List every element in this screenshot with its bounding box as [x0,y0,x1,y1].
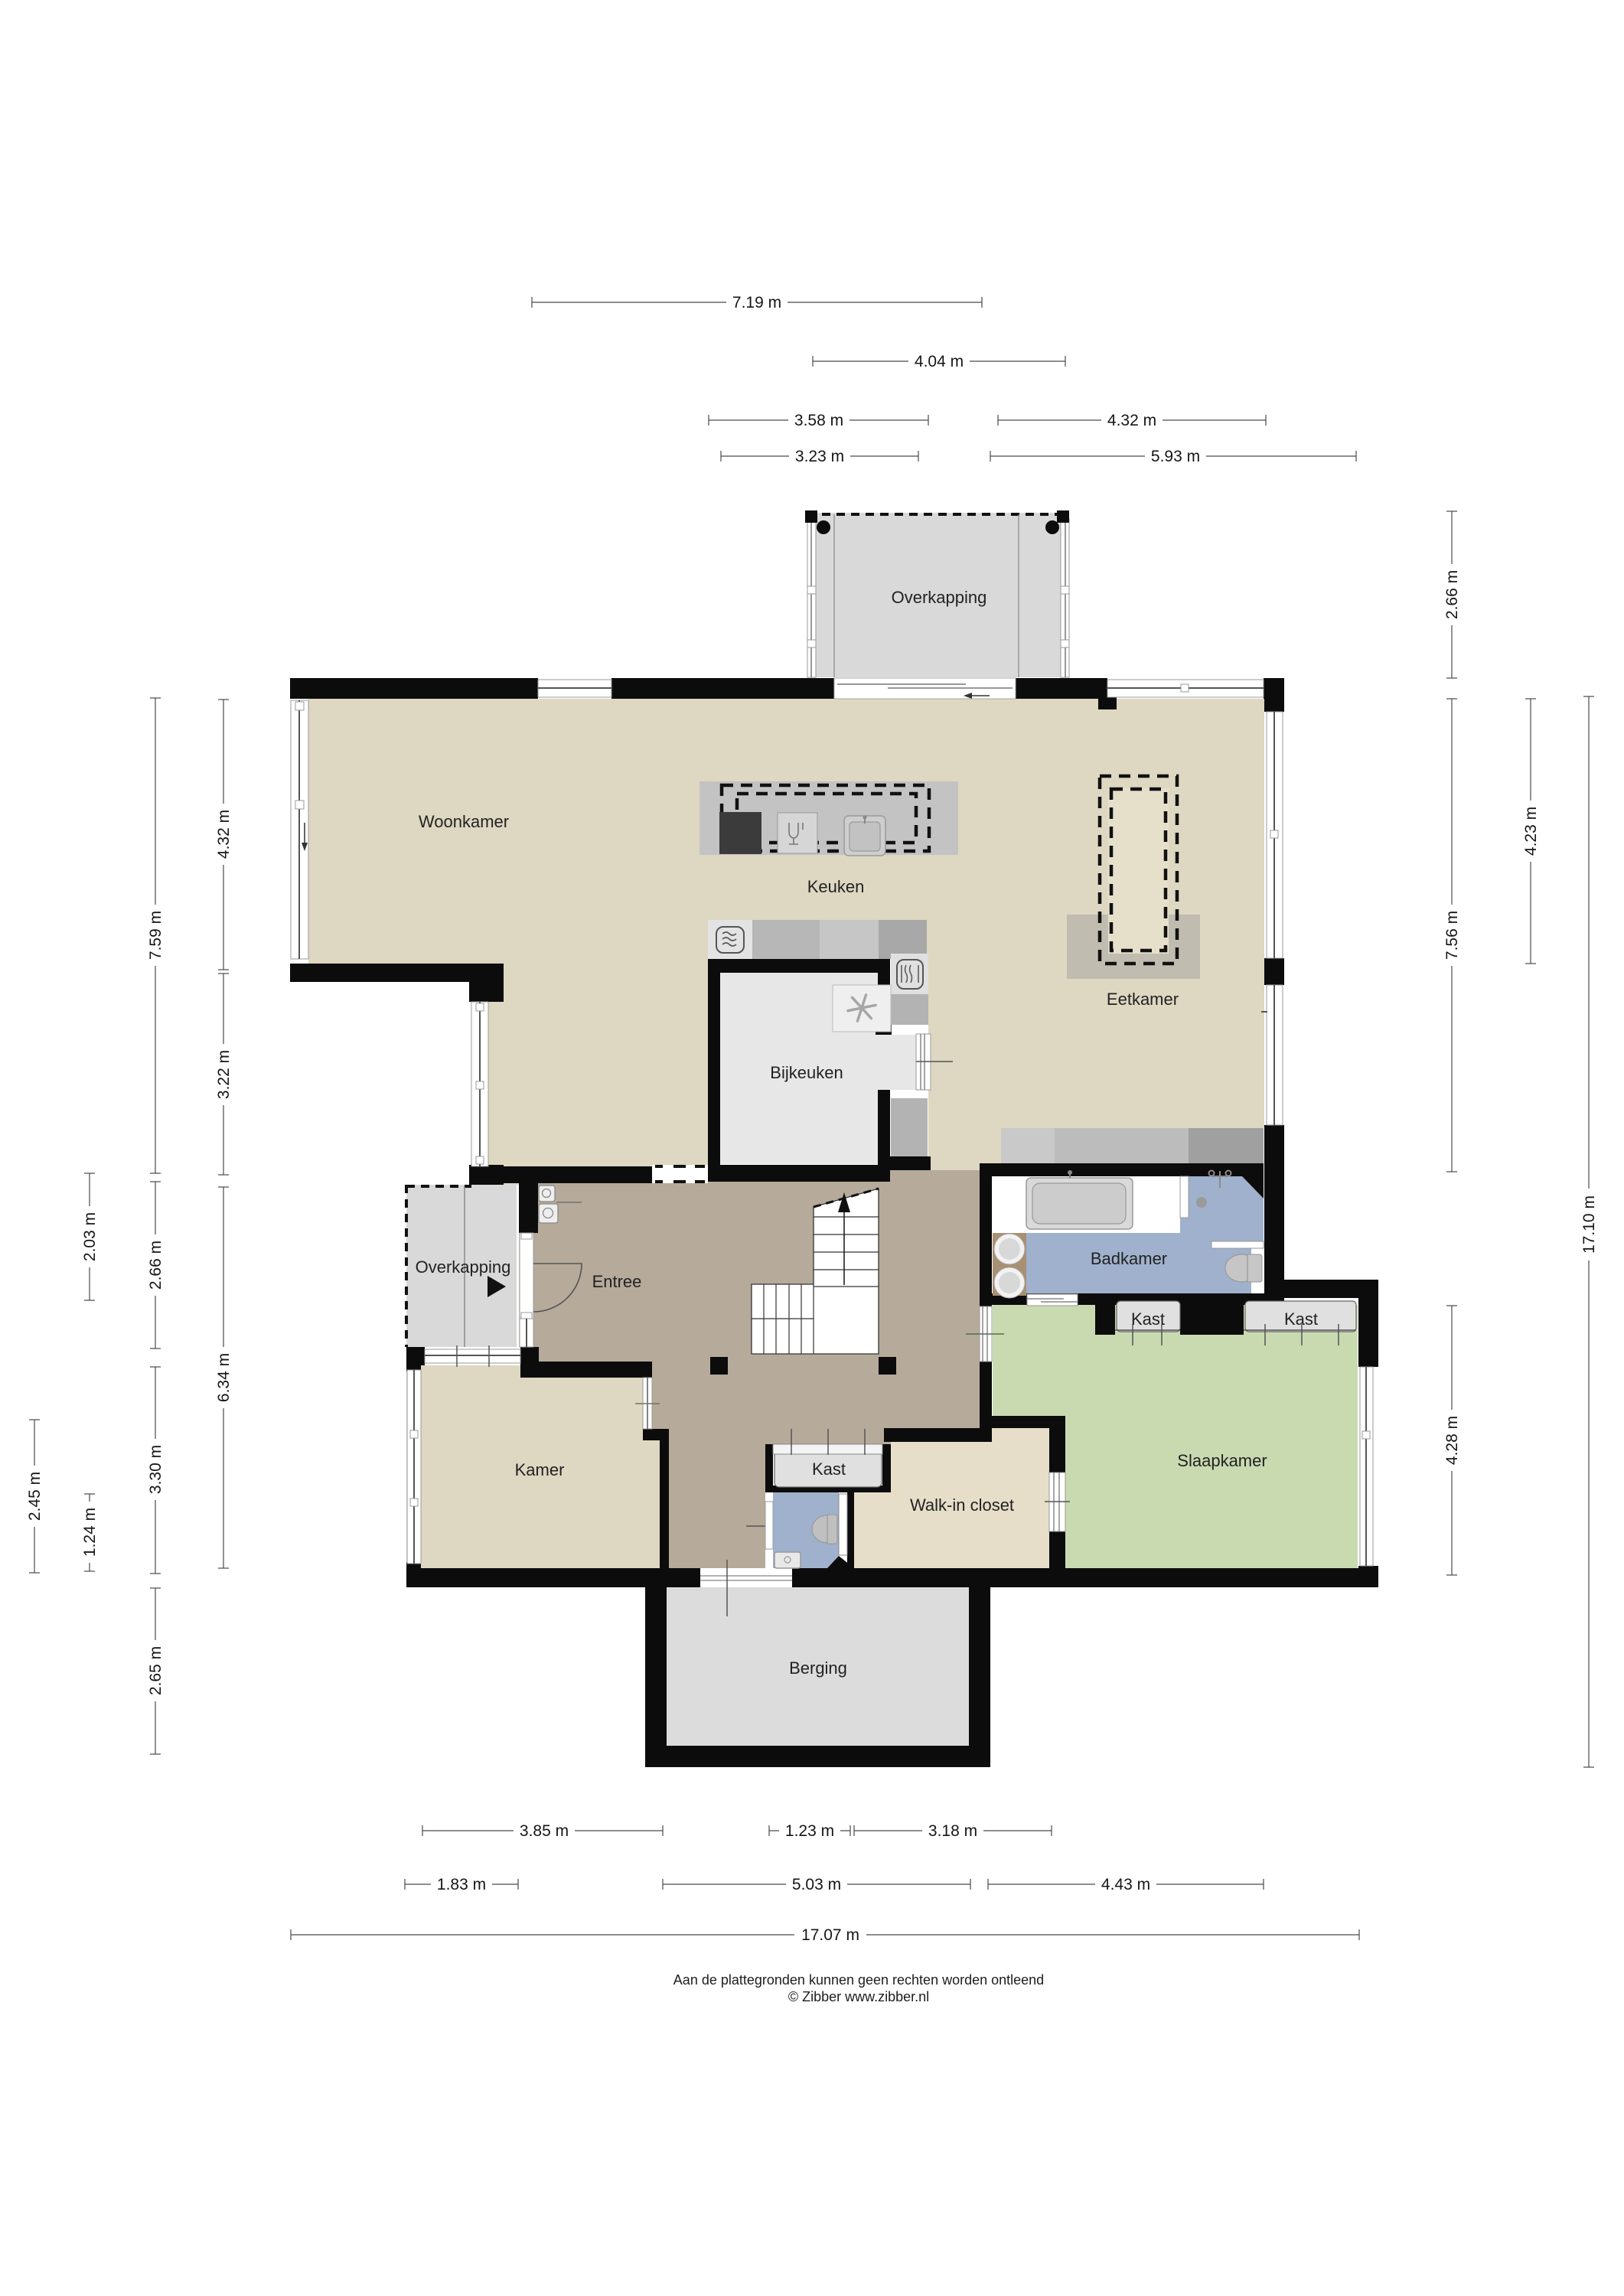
svg-text:3.85 m: 3.85 m [520,1822,569,1840]
svg-text:3.58 m: 3.58 m [794,412,843,429]
svg-text:Overkapping: Overkapping [416,1257,511,1277]
svg-text:Walk-in closet: Walk-in closet [910,1495,1014,1515]
svg-text:Woonkamer: Woonkamer [419,812,509,831]
svg-text:3.22 m: 3.22 m [215,1050,233,1099]
svg-text:Aan de plattegronden kunnen ge: Aan de plattegronden kunnen geen rechten… [673,1972,1044,1988]
svg-text:Keuken: Keuken [807,877,865,896]
svg-text:4.04 m: 4.04 m [915,353,964,370]
svg-text:1.83 m: 1.83 m [437,1876,486,1893]
svg-text:2.66 m: 2.66 m [147,1241,165,1290]
svg-text:Kast: Kast [1131,1309,1165,1329]
svg-text:3.18 m: 3.18 m [928,1822,977,1840]
svg-text:3.23 m: 3.23 m [795,448,844,465]
svg-text:4.32 m: 4.32 m [1107,412,1156,429]
svg-text:1.24 m: 1.24 m [81,1508,99,1557]
svg-text:Kast: Kast [812,1459,846,1479]
svg-text:4.32 m: 4.32 m [215,810,233,859]
svg-text:1.23 m: 1.23 m [785,1822,834,1840]
svg-text:5.93 m: 5.93 m [1151,448,1200,465]
svg-text:4.28 m: 4.28 m [1443,1416,1461,1465]
svg-text:17.10 m: 17.10 m [1580,1195,1598,1254]
svg-text:4.43 m: 4.43 m [1101,1876,1150,1893]
svg-text:Eetkamer: Eetkamer [1107,990,1179,1009]
svg-text:Slaapkamer: Slaapkamer [1177,1451,1267,1470]
svg-text:7.19 m: 7.19 m [732,294,781,311]
svg-text:Berging: Berging [789,1658,847,1678]
svg-text:Entree: Entree [592,1272,642,1291]
svg-text:7.56 m: 7.56 m [1443,911,1461,960]
svg-text:6.34 m: 6.34 m [215,1353,233,1402]
svg-text:Badkamer: Badkamer [1091,1249,1167,1268]
svg-text:Kamer: Kamer [515,1460,565,1479]
svg-text:Bijkeuken: Bijkeuken [770,1063,843,1082]
svg-text:2.65 m: 2.65 m [147,1646,165,1695]
svg-text:4.23 m: 4.23 m [1522,807,1540,856]
svg-text:Kast: Kast [1284,1309,1318,1329]
svg-text:7.59 m: 7.59 m [147,911,165,960]
svg-text:Overkapping: Overkapping [892,588,987,607]
svg-text:2.03 m: 2.03 m [81,1212,99,1261]
svg-text:2.66 m: 2.66 m [1443,570,1461,619]
svg-text:2.45 m: 2.45 m [26,1472,44,1521]
svg-text:© Zibber www.zibber.nl: © Zibber www.zibber.nl [788,1989,929,2004]
svg-text:5.03 m: 5.03 m [792,1876,841,1893]
svg-text:3.30 m: 3.30 m [147,1445,165,1494]
svg-text:17.07 m: 17.07 m [801,1926,859,1944]
